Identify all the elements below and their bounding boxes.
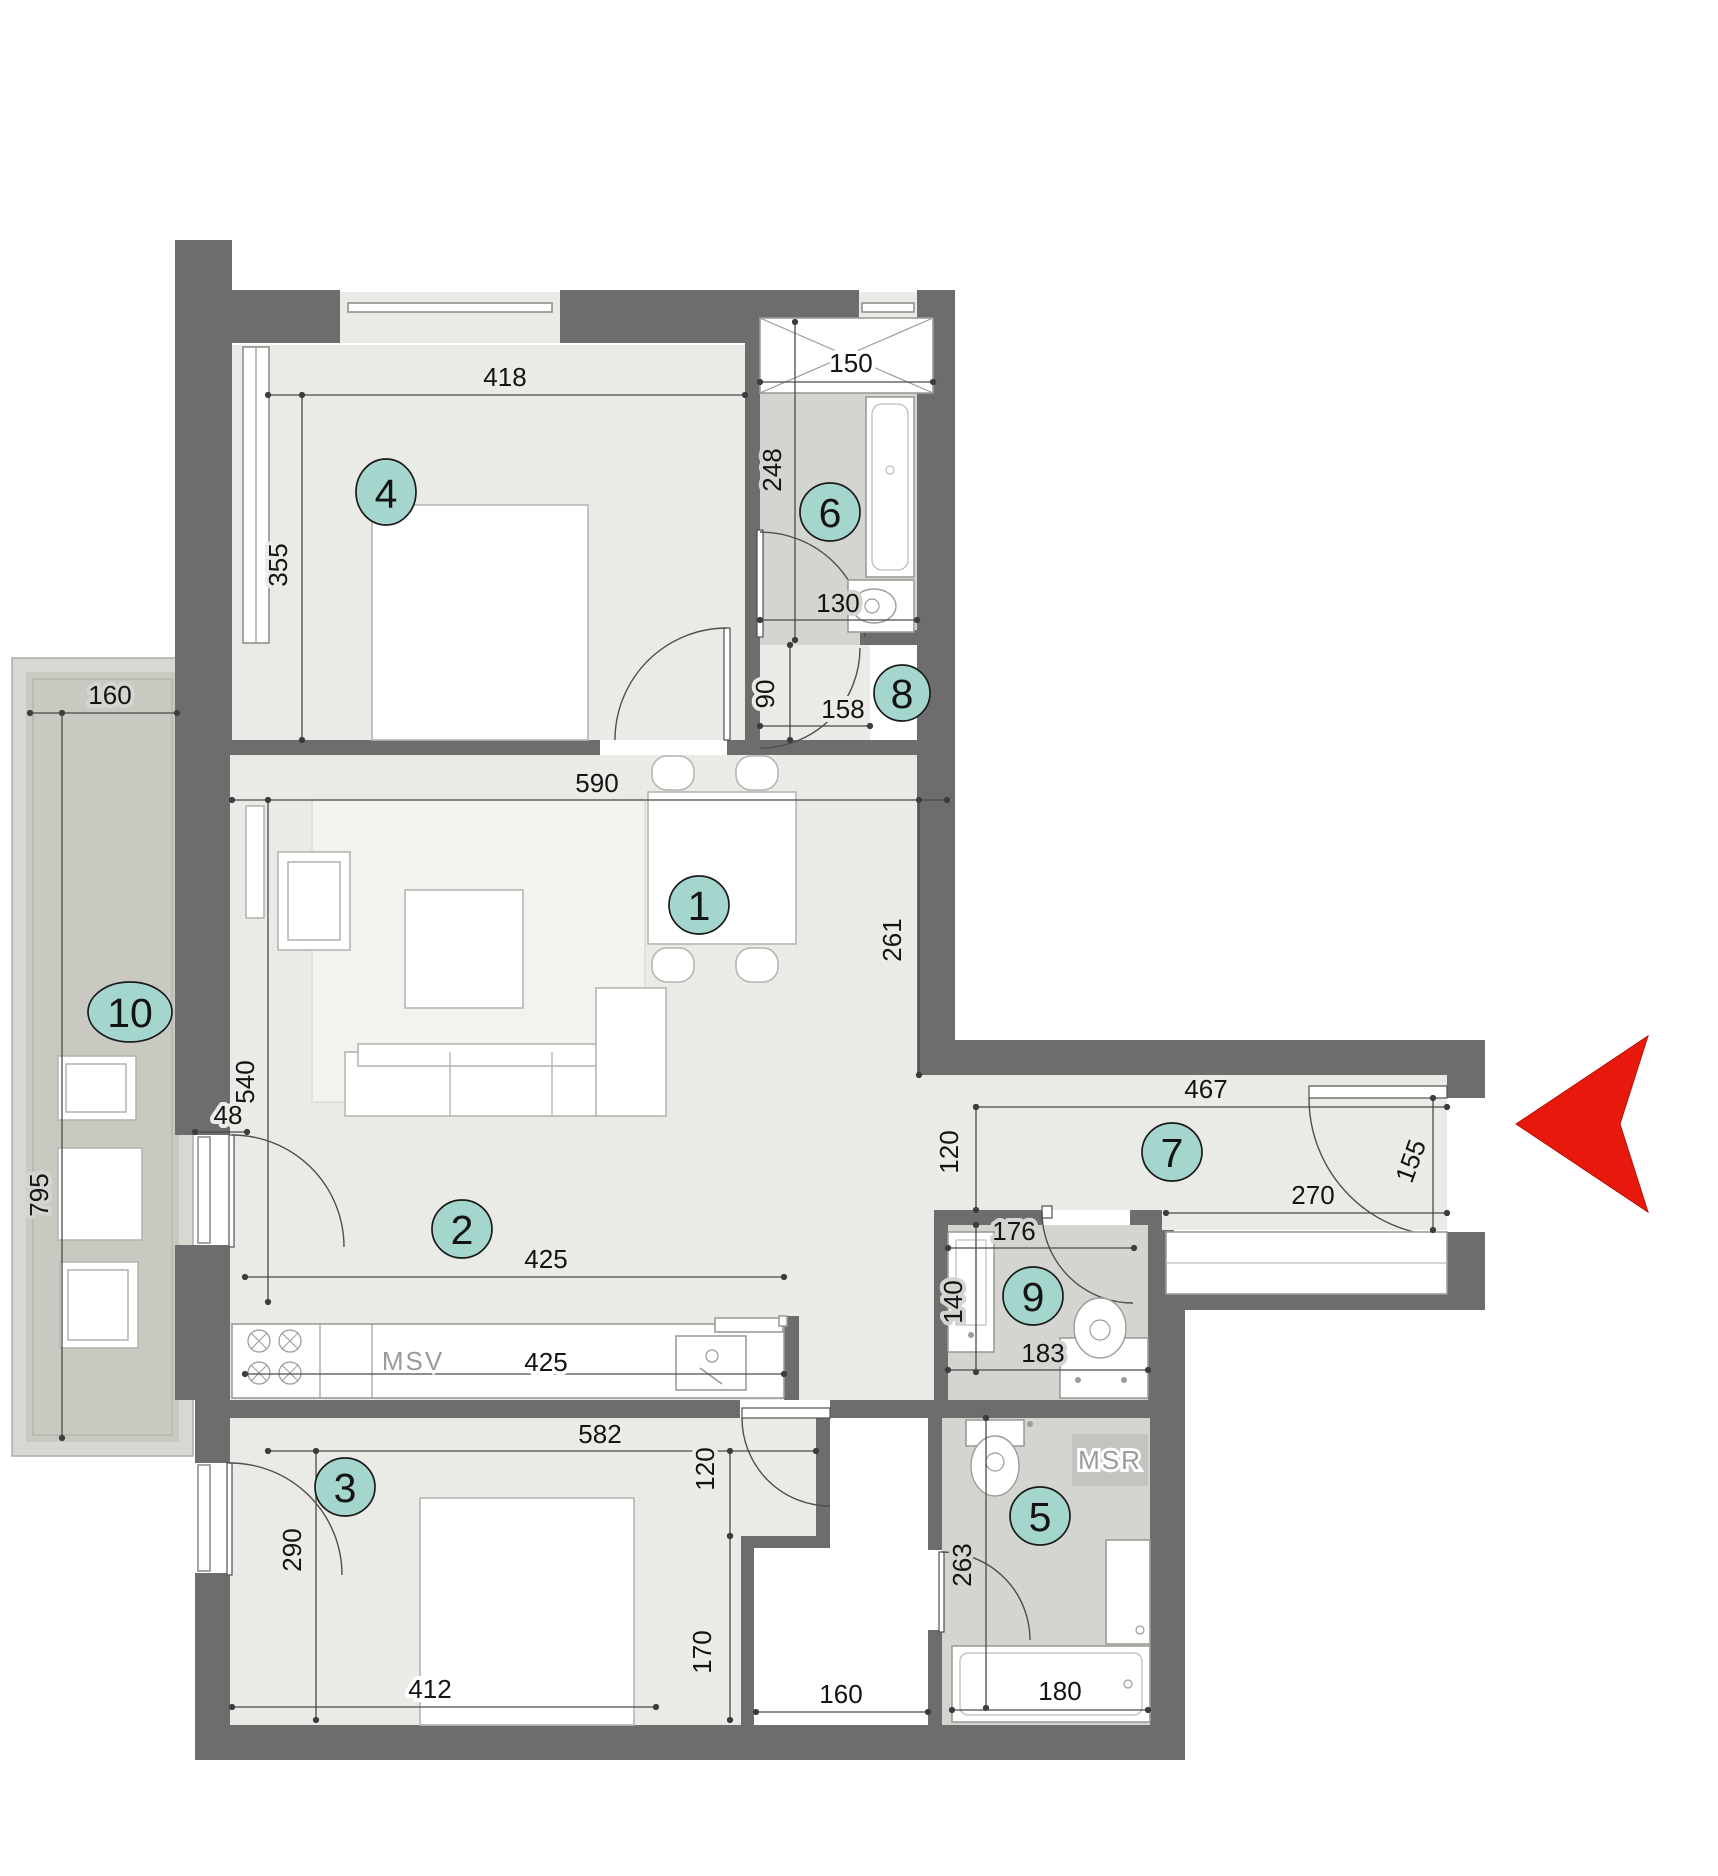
- dim-balcony-width: 160: [88, 680, 131, 710]
- badge-room10: 10: [88, 982, 172, 1042]
- dim-hall-length: 467: [1184, 1074, 1227, 1104]
- tv-stand: [246, 806, 264, 918]
- badge-room7: 7: [1142, 1123, 1202, 1181]
- badge-room1-number: 1: [688, 883, 711, 929]
- badge-room7-number: 7: [1161, 1130, 1184, 1176]
- dim-hall-width: 120: [934, 1130, 964, 1173]
- dim-kitchen-counter: 425: [524, 1347, 567, 1377]
- kitchen-counter: [232, 1316, 787, 1398]
- dim-bath6-depth: 248: [757, 448, 787, 491]
- chair: [652, 756, 694, 790]
- dim-room3-bed: 412: [408, 1674, 451, 1704]
- balcony: [12, 658, 193, 1456]
- room3-nook-floor: [741, 1418, 816, 1536]
- badge-room5: 5: [1010, 1487, 1070, 1545]
- dim-niche-width: 160: [819, 1679, 862, 1709]
- badge-room3: 3: [315, 1458, 375, 1516]
- dim-room3-width: 582: [578, 1419, 621, 1449]
- room4-side-window: [243, 347, 269, 643]
- badge-room2: 2: [432, 1200, 492, 1258]
- bed-room4: [372, 505, 588, 740]
- badge-room5-number: 5: [1029, 1494, 1052, 1540]
- dim-corridor-width: 90: [750, 680, 780, 709]
- dim-kitchen-clear: 425: [524, 1244, 567, 1274]
- dim-room3-door-side: 290: [277, 1528, 307, 1571]
- badge-room4: 4: [356, 459, 416, 525]
- badge-room6-number: 6: [819, 490, 842, 536]
- living-balcony-door-window: [198, 1137, 210, 1243]
- shower-bath5: [1106, 1540, 1150, 1644]
- badge-room10-number: 10: [107, 990, 153, 1036]
- dim-wc-width: 176: [992, 1216, 1035, 1246]
- badge-room6: 6: [800, 483, 860, 541]
- room4-top-window: [340, 292, 560, 343]
- dim-room4-depth: 355: [263, 543, 293, 586]
- chair: [652, 948, 694, 982]
- sink: [676, 1336, 746, 1390]
- chair: [736, 948, 778, 982]
- bed-room3: [420, 1498, 634, 1725]
- badge-room9: 9: [1003, 1267, 1063, 1325]
- fridge: [715, 1316, 787, 1332]
- dim-wc-bottom: 183: [1021, 1338, 1064, 1368]
- dim-room4-width: 418: [483, 362, 526, 392]
- chair: [736, 756, 778, 790]
- dim-wc-depth: 140: [938, 1280, 968, 1323]
- room3-balcony-door-window: [198, 1465, 210, 1571]
- dim-balcony-length: 795: [24, 1173, 54, 1216]
- floor-plan-drawing: 418 355 150 248 130 90 158 590 261 48 54…: [0, 0, 1718, 1876]
- floor-plan-page: 418 355 150 248 130 90 158 590 261 48 54…: [0, 0, 1718, 1876]
- hall-closet: [1166, 1232, 1447, 1294]
- dim-wardrobe6-width: 150: [829, 348, 872, 378]
- msv-label: MSV: [382, 1346, 444, 1376]
- entrance-arrow-icon: [1516, 1036, 1648, 1212]
- dim-bath5-depth: 263: [947, 1543, 977, 1586]
- dim-living-width: 590: [575, 768, 618, 798]
- dim-bath5-width: 180: [1038, 1676, 1081, 1706]
- badge-room8-number: 8: [891, 671, 914, 717]
- bathtub-room6: [866, 397, 914, 577]
- badge-room3-number: 3: [334, 1465, 357, 1511]
- msr-label: MSR: [1078, 1445, 1142, 1475]
- coffee-table: [405, 890, 523, 1008]
- dim-room3-nook-depth: 170: [687, 1630, 717, 1673]
- dim-living-depth: 540: [230, 1060, 260, 1103]
- badge-room4-number: 4: [375, 471, 398, 517]
- badge-room9-number: 9: [1022, 1274, 1045, 1320]
- badge-room2-number: 2: [451, 1207, 474, 1253]
- badge-room8: 8: [874, 665, 930, 721]
- dim-corridor-length: 158: [821, 694, 864, 724]
- dim-room3-nook-width: 120: [690, 1447, 720, 1490]
- dim-bath6-width: 130: [816, 588, 859, 618]
- dim-dining-depth: 261: [877, 918, 907, 961]
- badge-room1: 1: [669, 876, 729, 934]
- balcony-furniture: [58, 1056, 142, 1348]
- dim-hall-closet: 270: [1291, 1180, 1334, 1210]
